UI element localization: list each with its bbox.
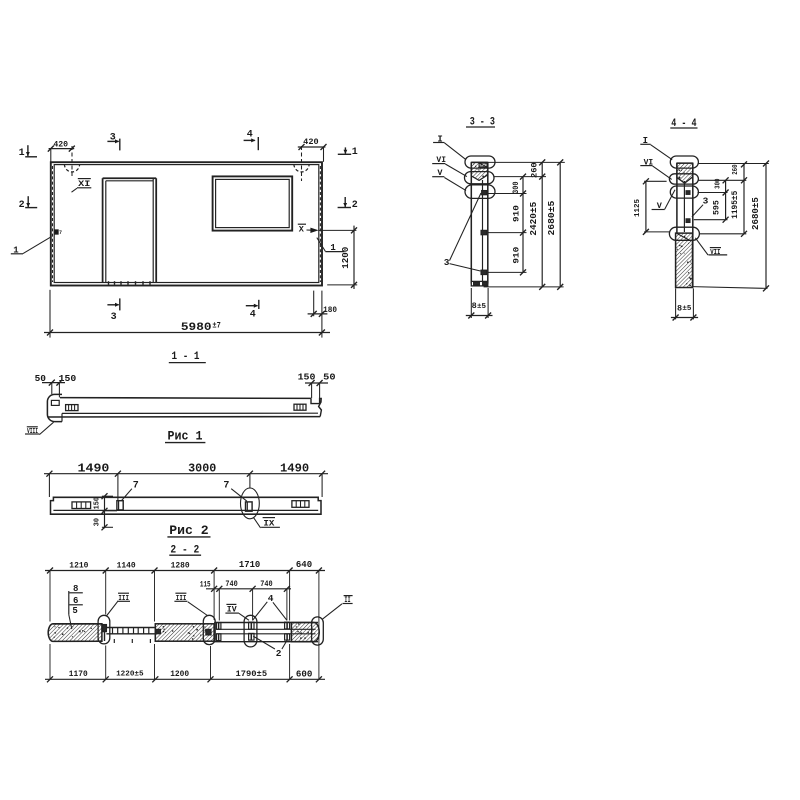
svg-text:640: 640 [296,560,312,570]
svg-text:180: 180 [323,306,337,315]
svg-text:260: 260 [531,162,540,178]
svg-text:1: 1 [352,147,358,158]
svg-text:5980: 5980 [181,322,212,334]
svg-text:2: 2 [352,200,358,211]
svg-text:III: III [118,595,129,603]
svg-text:1220±5: 1220±5 [116,670,144,678]
svg-text:1195±5: 1195±5 [732,190,740,218]
svg-text:1790±5: 1790±5 [236,669,268,679]
svg-text:2420±5: 2420±5 [529,202,539,236]
svg-text:VI: VI [644,159,654,168]
svg-text:±5: ±5 [477,303,487,311]
svg-text:1200: 1200 [340,246,351,268]
svg-text:5: 5 [72,606,77,616]
svg-text:3: 3 [111,312,117,323]
svg-text:4: 4 [250,309,256,320]
svg-text:2: 2 [276,648,282,659]
svg-text:30: 30 [93,518,101,526]
svg-text:8: 8 [472,301,477,311]
svg-text:595: 595 [713,200,722,215]
svg-text:115: 115 [200,580,211,589]
svg-text:1170: 1170 [69,669,88,679]
svg-text:1140: 1140 [117,560,136,570]
svg-text:50: 50 [323,372,336,383]
svg-text:III: III [176,595,187,603]
svg-text:1280: 1280 [171,560,190,570]
svg-text:7: 7 [133,480,139,491]
svg-text:2: 2 [19,200,25,211]
svg-text:Рис 1: Рис 1 [168,429,203,443]
svg-text:7: 7 [59,230,62,236]
svg-text:Рис 2: Рис 2 [169,524,208,538]
svg-text:2680±5: 2680±5 [751,197,761,230]
svg-text:740: 740 [260,580,273,589]
svg-text:600: 600 [296,669,313,679]
svg-text:2680±5: 2680±5 [547,201,557,236]
svg-text:260: 260 [732,164,740,175]
svg-text:420: 420 [303,138,318,147]
svg-text:1: 1 [19,148,25,159]
svg-text:7: 7 [223,480,229,491]
svg-text:910: 910 [513,205,522,222]
svg-text:1710: 1710 [239,560,260,570]
svg-text:VII: VII [710,249,720,257]
svg-text:300: 300 [715,178,723,189]
svg-text:X: X [299,225,305,235]
svg-text:300: 300 [512,181,521,194]
svg-text:1 - 1: 1 - 1 [172,351,200,363]
svg-text:3: 3 [444,257,450,268]
svg-text:±7: ±7 [212,321,221,330]
svg-text:740: 740 [225,580,238,589]
svg-text:±5: ±5 [682,305,692,313]
svg-text:1200: 1200 [170,669,189,679]
svg-text:8: 8 [677,303,682,313]
svg-text:1210: 1210 [69,560,88,570]
svg-text:1125: 1125 [634,199,642,217]
svg-text:910: 910 [513,247,522,264]
svg-text:3: 3 [703,196,709,207]
svg-text:150: 150 [93,497,101,509]
svg-text:VIII: VIII [27,428,38,436]
